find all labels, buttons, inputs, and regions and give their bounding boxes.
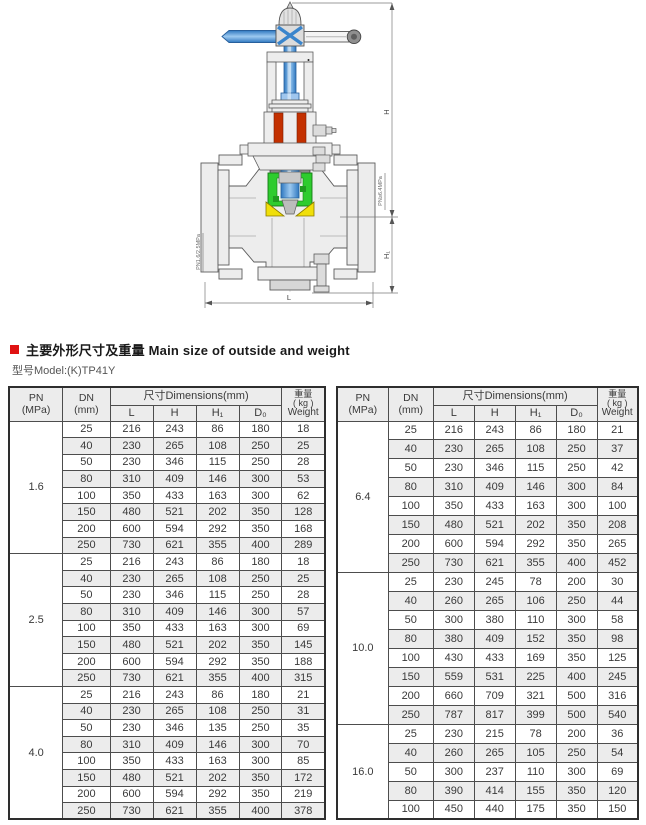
value-cell: 180	[239, 687, 282, 704]
value-cell: 300	[239, 753, 282, 770]
value-cell: 21	[597, 421, 638, 440]
value-cell: 100	[388, 497, 433, 516]
value-cell: 600	[110, 653, 153, 670]
value-cell: 28	[282, 454, 325, 471]
value-cell: 200	[388, 686, 433, 705]
value-cell: 108	[515, 440, 556, 459]
value-cell: 100	[388, 800, 433, 819]
value-cell: 44	[597, 592, 638, 611]
value-cell: 300	[556, 497, 597, 516]
value-cell: 58	[597, 611, 638, 630]
value-cell: 163	[515, 497, 556, 516]
value-cell: 433	[474, 497, 515, 516]
value-cell: 30	[597, 573, 638, 592]
value-cell: 414	[474, 781, 515, 800]
value-cell: 163	[196, 620, 239, 637]
value-cell: 350	[239, 769, 282, 786]
value-cell: 250	[556, 459, 597, 478]
value-cell: 40	[63, 438, 110, 455]
value-cell: 100	[63, 753, 110, 770]
value-cell: 346	[153, 720, 196, 737]
dimension-tables: PN(MPa) DN(mm) 尺寸Dimensions(mm) 重量 ( kg …	[0, 378, 646, 820]
value-cell: 300	[556, 611, 597, 630]
table-row: 10.0252302457820030	[337, 573, 638, 592]
value-cell: 250	[63, 537, 110, 554]
value-cell: 50	[63, 454, 110, 471]
left-flange-top-tab	[219, 155, 242, 165]
value-cell: 355	[196, 670, 239, 687]
value-cell: 730	[110, 803, 153, 820]
value-cell: 69	[282, 620, 325, 637]
value-cell: 310	[433, 478, 474, 497]
value-cell: 200	[388, 535, 433, 554]
value-cell: 265	[153, 570, 196, 587]
value-cell: 521	[153, 637, 196, 654]
value-cell: 521	[153, 769, 196, 786]
value-cell: 21	[282, 687, 325, 704]
right-flange-top-tab	[334, 155, 357, 165]
value-cell: 350	[556, 629, 597, 648]
value-cell: 433	[474, 648, 515, 667]
value-cell: 250	[239, 454, 282, 471]
value-cell: 202	[196, 769, 239, 786]
value-cell: 250	[388, 554, 433, 573]
value-cell: 265	[474, 743, 515, 762]
value-cell: 350	[433, 497, 474, 516]
value-cell: 80	[388, 781, 433, 800]
value-cell: 621	[474, 554, 515, 573]
value-cell: 265	[597, 535, 638, 554]
value-cell: 86	[196, 421, 239, 438]
value-cell: 430	[433, 648, 474, 667]
value-cell: 521	[153, 504, 196, 521]
bottom-plug	[270, 280, 310, 290]
value-cell: 230	[110, 720, 153, 737]
value-cell: 145	[282, 637, 325, 654]
value-cell: 69	[597, 762, 638, 781]
value-cell: 168	[282, 521, 325, 538]
value-cell: 321	[515, 686, 556, 705]
value-cell: 200	[63, 521, 110, 538]
value-cell: 346	[474, 459, 515, 478]
value-cell: 350	[556, 800, 597, 819]
value-cell: 80	[388, 629, 433, 648]
value-cell: 621	[153, 803, 196, 820]
value-cell: 237	[474, 762, 515, 781]
value-cell: 289	[282, 537, 325, 554]
packing-left	[274, 113, 283, 147]
value-cell: 70	[282, 736, 325, 753]
value-cell: 594	[153, 653, 196, 670]
value-cell: 18	[282, 421, 325, 438]
value-cell: 110	[515, 611, 556, 630]
section-header: 主要外形尺寸及重量 Main size of outside and weigh…	[0, 334, 646, 378]
value-cell: 163	[196, 753, 239, 770]
value-cell: 243	[474, 421, 515, 440]
value-cell: 150	[63, 637, 110, 654]
value-cell: 80	[63, 604, 110, 621]
header-col-h: H	[153, 405, 196, 421]
value-cell: 350	[239, 653, 282, 670]
value-cell: 216	[110, 687, 153, 704]
left-flange-bottom-tab	[219, 269, 242, 279]
value-cell: 600	[110, 786, 153, 803]
value-cell: 219	[282, 786, 325, 803]
left-flange	[201, 163, 218, 272]
header-dimensions: 尺寸Dimensions(mm)	[110, 387, 282, 405]
header-col-h1: H₁	[196, 405, 239, 421]
value-cell: 188	[282, 653, 325, 670]
value-cell: 621	[153, 537, 196, 554]
value-cell: 98	[597, 629, 638, 648]
model-label: 型号Model:(K)TP41Y	[12, 362, 636, 378]
value-cell: 106	[515, 592, 556, 611]
value-cell: 350	[556, 781, 597, 800]
section-title-zh: 主要外形尺寸及重量	[26, 343, 145, 358]
value-cell: 100	[597, 497, 638, 516]
value-cell: 120	[597, 781, 638, 800]
value-cell: 108	[196, 438, 239, 455]
value-cell: 300	[433, 611, 474, 630]
value-cell: 100	[63, 620, 110, 637]
value-cell: 350	[239, 786, 282, 803]
dim-label-h1: H₁	[382, 251, 391, 259]
handle-left-arm	[222, 31, 276, 43]
value-cell: 40	[388, 440, 433, 459]
value-cell: 350	[239, 521, 282, 538]
value-cell: 300	[239, 736, 282, 753]
value-cell: 250	[239, 587, 282, 604]
value-cell: 709	[474, 686, 515, 705]
value-cell: 150	[597, 800, 638, 819]
value-cell: 500	[556, 705, 597, 724]
value-cell: 292	[196, 786, 239, 803]
value-cell: 50	[63, 720, 110, 737]
value-cell: 500	[556, 686, 597, 705]
value-cell: 216	[110, 554, 153, 571]
value-cell: 600	[433, 535, 474, 554]
value-cell: 350	[556, 535, 597, 554]
value-cell: 78	[515, 573, 556, 592]
value-cell: 150	[388, 667, 433, 686]
value-cell: 350	[556, 516, 597, 535]
value-cell: 250	[63, 803, 110, 820]
value-cell: 25	[282, 438, 325, 455]
value-cell: 78	[515, 724, 556, 743]
right-flange-step	[347, 170, 358, 265]
value-cell: 225	[515, 667, 556, 686]
pn-group-cell: 4.0	[9, 687, 63, 820]
header-dn: DN(mm)	[63, 387, 110, 421]
value-cell: 433	[153, 487, 196, 504]
value-cell: 350	[239, 637, 282, 654]
value-cell: 230	[433, 459, 474, 478]
value-cell: 521	[474, 516, 515, 535]
value-cell: 300	[556, 478, 597, 497]
value-cell: 409	[474, 629, 515, 648]
pn-group-cell: 6.4	[337, 421, 388, 573]
dimensions-table-left: PN(MPa) DN(mm) 尺寸Dimensions(mm) 重量 ( kg …	[8, 386, 326, 820]
valve-handle	[222, 2, 361, 46]
red-square-bullet-icon	[10, 345, 19, 354]
value-cell: 300	[556, 762, 597, 781]
value-cell: 216	[110, 421, 153, 438]
value-cell: 378	[282, 803, 325, 820]
value-cell: 40	[63, 570, 110, 587]
value-cell: 169	[515, 648, 556, 667]
value-cell: 433	[153, 620, 196, 637]
value-cell: 243	[153, 554, 196, 571]
value-cell: 292	[196, 521, 239, 538]
value-cell: 115	[196, 587, 239, 604]
value-cell: 53	[282, 471, 325, 488]
value-cell: 146	[515, 478, 556, 497]
value-cell: 600	[110, 521, 153, 538]
value-cell: 200	[556, 724, 597, 743]
plunger-band	[279, 172, 301, 183]
value-cell: 28	[282, 587, 325, 604]
header-col-h: H	[474, 405, 515, 421]
value-cell: 100	[388, 648, 433, 667]
header-col-l: L	[433, 405, 474, 421]
value-cell: 400	[239, 803, 282, 820]
value-cell: 300	[239, 471, 282, 488]
right-flange-bottom-tab	[334, 269, 357, 279]
table-row: 6.4252162438618021	[337, 421, 638, 440]
value-cell: 250	[556, 440, 597, 459]
value-cell: 215	[474, 724, 515, 743]
value-cell: 230	[433, 440, 474, 459]
value-cell: 108	[196, 570, 239, 587]
value-cell: 250	[239, 438, 282, 455]
value-cell: 730	[433, 554, 474, 573]
value-cell: 400	[556, 554, 597, 573]
value-cell: 400	[239, 537, 282, 554]
header-dn: DN(mm)	[388, 387, 433, 421]
value-cell: 180	[556, 421, 597, 440]
value-cell: 150	[388, 516, 433, 535]
value-cell: 399	[515, 705, 556, 724]
header-weight: 重量 ( kg ) Weight	[597, 387, 638, 421]
value-cell: 85	[282, 753, 325, 770]
value-cell: 155	[515, 781, 556, 800]
value-cell: 180	[239, 554, 282, 571]
value-cell: 200	[63, 786, 110, 803]
section-title: 主要外形尺寸及重量 Main size of outside and weigh…	[26, 340, 350, 359]
value-cell: 18	[282, 554, 325, 571]
value-cell: 40	[388, 743, 433, 762]
header-pn: PN(MPa)	[9, 387, 63, 421]
value-cell: 480	[110, 769, 153, 786]
value-cell: 150	[63, 769, 110, 786]
value-cell: 310	[110, 604, 153, 621]
valve-cross-section-svg: H H₁ L PN1.6/2.5MPa PN≥6.4MPa	[0, 0, 646, 334]
value-cell: 35	[282, 720, 325, 737]
value-cell: 300	[239, 604, 282, 621]
value-cell: 243	[153, 687, 196, 704]
value-cell: 146	[196, 604, 239, 621]
value-cell: 57	[282, 604, 325, 621]
value-cell: 350	[239, 504, 282, 521]
value-cell: 42	[597, 459, 638, 478]
value-cell: 480	[110, 637, 153, 654]
section-title-en: Main size of outside and weight	[149, 343, 350, 358]
value-cell: 350	[110, 620, 153, 637]
value-cell: 480	[433, 516, 474, 535]
table-row: 4.0252162438618021	[9, 687, 325, 704]
yoke-top-plate	[267, 52, 313, 62]
value-cell: 409	[153, 604, 196, 621]
dimensions-table-right: PN(MPa) DN(mm) 尺寸Dimensions(mm) 重量 ( kg …	[336, 386, 639, 820]
value-cell: 202	[515, 516, 556, 535]
value-cell: 265	[153, 438, 196, 455]
table-row: 16.0252302157820036	[337, 724, 638, 743]
value-cell: 84	[597, 478, 638, 497]
pn-note-right: PN≥6.4MPa	[378, 175, 384, 206]
value-cell: 730	[110, 670, 153, 687]
value-cell: 115	[196, 454, 239, 471]
value-cell: 110	[515, 762, 556, 781]
value-cell: 250	[63, 670, 110, 687]
value-cell: 230	[110, 570, 153, 587]
value-cell: 250	[239, 570, 282, 587]
left-flange-step	[218, 170, 229, 265]
value-cell: 265	[153, 703, 196, 720]
value-cell: 540	[597, 705, 638, 724]
value-cell: 150	[63, 504, 110, 521]
value-cell: 40	[388, 592, 433, 611]
value-cell: 230	[433, 573, 474, 592]
value-cell: 660	[433, 686, 474, 705]
value-cell: 115	[515, 459, 556, 478]
value-cell: 200	[63, 653, 110, 670]
header-pn: PN(MPa)	[337, 387, 388, 421]
value-cell: 355	[515, 554, 556, 573]
value-cell: 230	[110, 454, 153, 471]
value-cell: 202	[196, 504, 239, 521]
value-cell: 433	[153, 753, 196, 770]
value-cell: 452	[597, 554, 638, 573]
value-cell: 594	[153, 521, 196, 538]
value-cell: 350	[556, 648, 597, 667]
value-cell: 480	[110, 504, 153, 521]
value-cell: 265	[474, 440, 515, 459]
value-cell: 230	[110, 703, 153, 720]
value-cell: 128	[282, 504, 325, 521]
value-cell: 310	[110, 471, 153, 488]
value-cell: 817	[474, 705, 515, 724]
value-cell: 100	[63, 487, 110, 504]
value-cell: 146	[196, 736, 239, 753]
value-cell: 216	[433, 421, 474, 440]
value-cell: 250	[239, 720, 282, 737]
value-cell: 40	[63, 703, 110, 720]
value-cell: 316	[597, 686, 638, 705]
header-col-h1: H₁	[515, 405, 556, 421]
value-cell: 440	[474, 800, 515, 819]
value-cell: 594	[153, 786, 196, 803]
value-cell: 146	[196, 471, 239, 488]
value-cell: 200	[556, 573, 597, 592]
value-cell: 230	[110, 587, 153, 604]
value-cell: 400	[556, 667, 597, 686]
value-cell: 243	[153, 421, 196, 438]
value-cell: 250	[388, 705, 433, 724]
table-row: 1.6252162438618018	[9, 421, 325, 438]
value-cell: 152	[515, 629, 556, 648]
dim-label-h: H	[382, 109, 391, 114]
header-dimensions: 尺寸Dimensions(mm)	[433, 387, 597, 405]
value-cell: 400	[239, 670, 282, 687]
value-cell: 559	[433, 667, 474, 686]
value-cell: 208	[597, 516, 638, 535]
value-cell: 36	[597, 724, 638, 743]
value-cell: 135	[196, 720, 239, 737]
value-cell: 105	[515, 743, 556, 762]
value-cell: 265	[474, 592, 515, 611]
value-cell: 250	[239, 703, 282, 720]
value-cell: 80	[63, 736, 110, 753]
value-cell: 292	[515, 535, 556, 554]
value-cell: 315	[282, 670, 325, 687]
header-col-d0: D₀	[556, 405, 597, 421]
value-cell: 25	[388, 724, 433, 743]
value-cell: 300	[239, 487, 282, 504]
pn-note-left: PN1.6/2.5MPa	[196, 233, 202, 270]
value-cell: 300	[433, 762, 474, 781]
value-cell: 346	[153, 587, 196, 604]
cap-nut-dome	[279, 8, 301, 25]
value-cell: 180	[239, 421, 282, 438]
header-weight: 重量 ( kg ) Weight	[282, 387, 325, 421]
value-cell: 621	[153, 670, 196, 687]
value-cell: 531	[474, 667, 515, 686]
value-cell: 346	[153, 454, 196, 471]
dim-label-l: L	[287, 293, 291, 302]
value-cell: 409	[153, 471, 196, 488]
value-cell: 355	[196, 537, 239, 554]
value-cell: 50	[388, 762, 433, 781]
grease-fitting	[313, 125, 336, 136]
value-cell: 80	[63, 471, 110, 488]
value-cell: 380	[433, 629, 474, 648]
value-cell: 25	[63, 687, 110, 704]
value-cell: 50	[388, 611, 433, 630]
value-cell: 54	[597, 743, 638, 762]
value-cell: 409	[153, 736, 196, 753]
value-cell: 50	[63, 587, 110, 604]
value-cell: 163	[196, 487, 239, 504]
pn-group-cell: 2.5	[9, 554, 63, 687]
value-cell: 202	[196, 637, 239, 654]
value-cell: 230	[433, 724, 474, 743]
value-cell: 25	[388, 573, 433, 592]
value-cell: 80	[388, 478, 433, 497]
pn-group-cell: 16.0	[337, 724, 388, 819]
value-cell: 25	[63, 421, 110, 438]
header-col-l: L	[110, 405, 153, 421]
packing-right	[297, 113, 306, 147]
pn-group-cell: 10.0	[337, 573, 388, 725]
value-cell: 172	[282, 769, 325, 786]
header-col-d0: D₀	[239, 405, 282, 421]
value-cell: 250	[556, 743, 597, 762]
catalog-page: { "section": { "title_zh": "主要外形尺寸及重量", …	[0, 0, 646, 825]
value-cell: 310	[110, 736, 153, 753]
value-cell: 594	[474, 535, 515, 554]
table-row: 2.5252162438618018	[9, 554, 325, 571]
value-cell: 108	[196, 703, 239, 720]
